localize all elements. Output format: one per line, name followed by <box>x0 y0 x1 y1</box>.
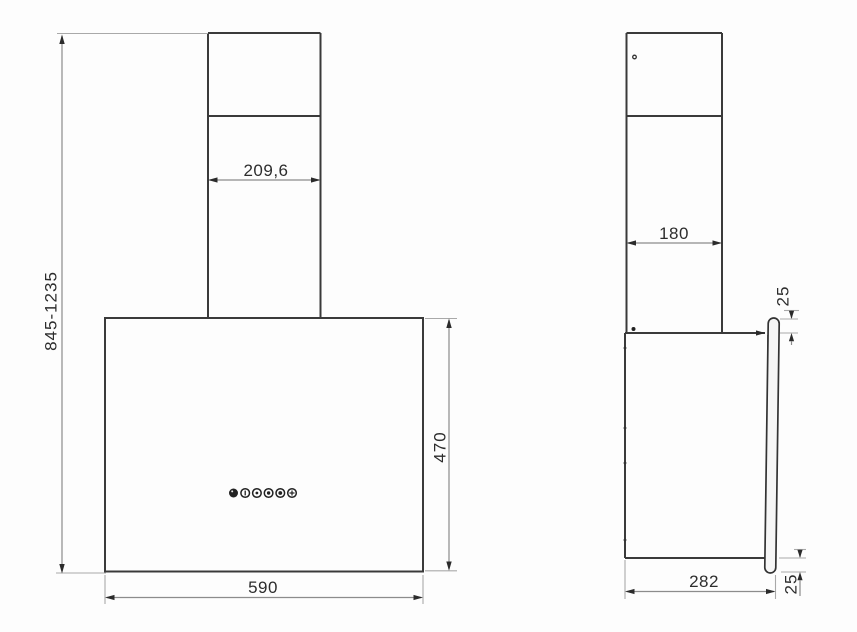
edge-mark <box>624 427 627 430</box>
height-range-label: 845-1235 <box>42 271 61 351</box>
boost-icon <box>276 489 285 498</box>
side-chimney <box>627 33 723 333</box>
speed-3-icon <box>264 489 273 498</box>
glass-top-overhang-label: 25 <box>774 286 793 307</box>
edge-mark <box>624 462 627 465</box>
control-panel <box>229 489 296 498</box>
dimension-body-depth: 282 <box>625 560 776 599</box>
side-view: 180 25 25 <box>624 33 806 599</box>
edge-mark <box>624 539 627 542</box>
body-glass-junction-arrow <box>756 330 765 335</box>
speed-2-icon <box>253 489 262 498</box>
chimney-width-label: 209,6 <box>243 161 288 180</box>
light-icon <box>288 489 297 498</box>
glass-panel <box>765 318 780 573</box>
dimension-body-height: 470 <box>425 319 457 571</box>
chimney-depth-label: 180 <box>659 224 689 243</box>
dimension-chimney-width: 209,6 <box>208 161 321 183</box>
side-body <box>624 327 768 558</box>
speed-1-icon <box>241 489 250 498</box>
body-height-label: 470 <box>431 431 450 462</box>
mount-dot <box>632 327 636 331</box>
drawing-canvas: 845-1235 209,6 590 470 <box>0 0 857 632</box>
edge-mark <box>624 347 627 350</box>
dimension-chimney-depth: 180 <box>627 224 723 246</box>
chimney-hole <box>633 55 637 59</box>
front-body <box>105 318 423 572</box>
body-width-label: 590 <box>248 578 278 597</box>
dimension-glass-bottom-overhang: 25 <box>779 550 806 597</box>
front-view: 845-1235 209,6 590 470 <box>42 33 458 604</box>
technical-drawing: 845-1235 209,6 590 470 <box>0 0 857 632</box>
body-depth-label: 282 <box>689 572 719 591</box>
dimension-body-width: 590 <box>105 575 423 604</box>
dimension-height-range: 845-1235 <box>42 34 209 574</box>
glass-bottom-overhang-label: 25 <box>782 574 801 595</box>
power-icon <box>229 489 238 498</box>
